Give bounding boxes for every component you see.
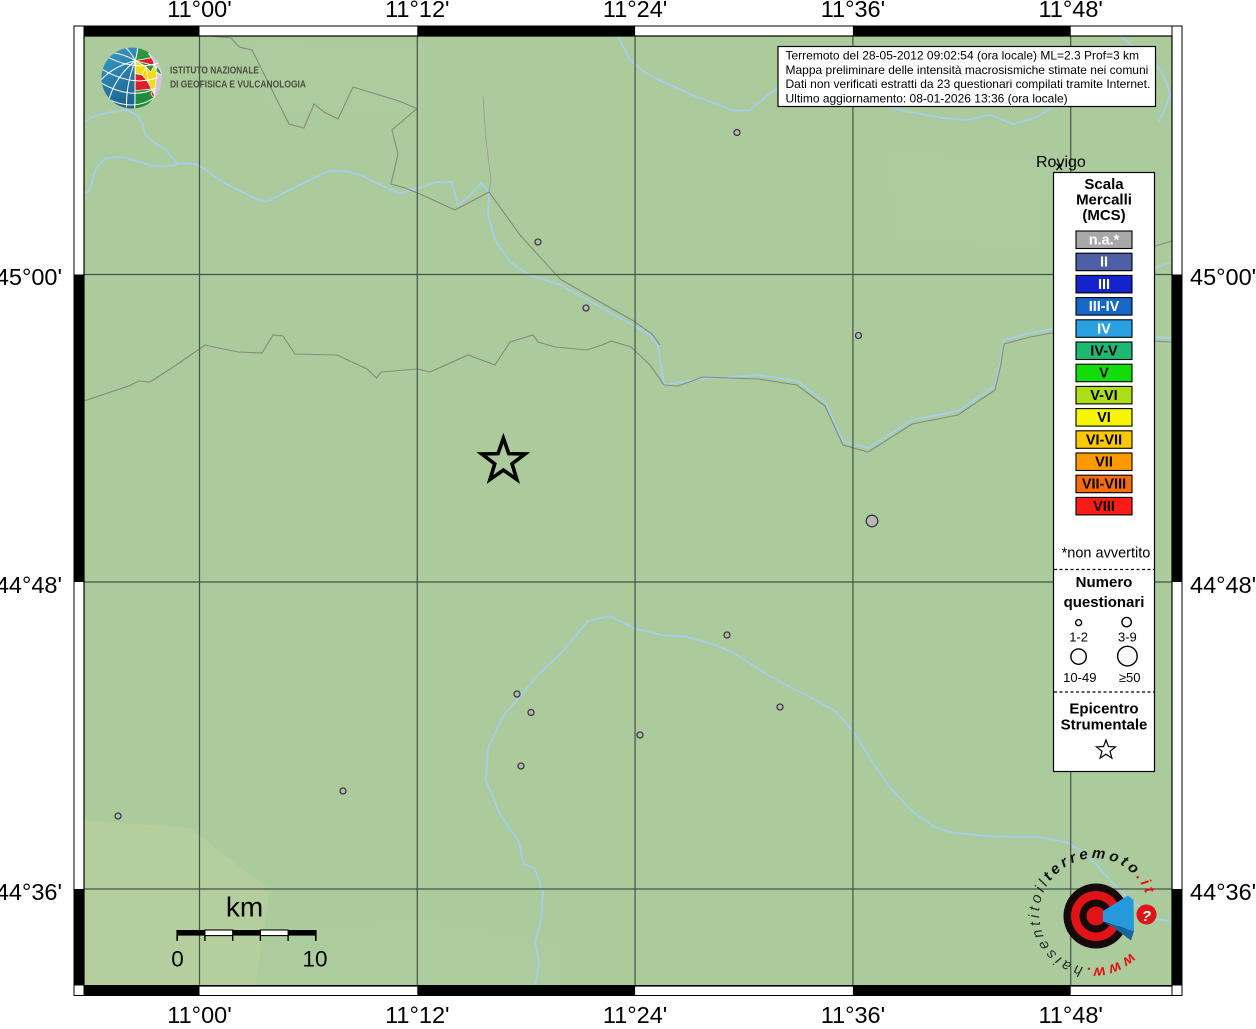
svg-text:44°48': 44°48' <box>0 572 62 598</box>
svg-text:questionari: questionari <box>1064 594 1145 611</box>
svg-text:44°36': 44°36' <box>0 879 62 905</box>
svg-text:*non avvertito: *non avvertito <box>1062 546 1151 562</box>
svg-text:V-VI: V-VI <box>1090 388 1117 404</box>
svg-text:45°00': 45°00' <box>1190 264 1256 290</box>
svg-text:(MCS): (MCS) <box>1082 207 1125 224</box>
svg-text:11°12': 11°12' <box>385 0 449 22</box>
svg-text:10-49: 10-49 <box>1063 670 1096 685</box>
svg-text:Epicentro: Epicentro <box>1069 701 1138 718</box>
svg-text:11°36': 11°36' <box>821 0 885 22</box>
svg-text:km: km <box>226 892 263 923</box>
svg-text:11°48': 11°48' <box>1038 1002 1102 1024</box>
svg-text:45°00': 45°00' <box>0 264 62 290</box>
svg-text:IV: IV <box>1097 321 1111 337</box>
svg-text:3-9: 3-9 <box>1118 629 1137 644</box>
svg-text:0: 0 <box>171 947 184 972</box>
svg-text:Numero: Numero <box>1076 574 1133 591</box>
svg-text:Strumentale: Strumentale <box>1061 717 1148 734</box>
svg-text:10: 10 <box>302 947 327 972</box>
svg-text:Mercalli: Mercalli <box>1076 192 1132 209</box>
svg-text:11°00': 11°00' <box>167 0 231 22</box>
svg-text:V: V <box>1099 366 1109 382</box>
svg-text:44°48': 44°48' <box>1190 572 1256 598</box>
svg-text:?: ? <box>1142 908 1151 925</box>
svg-text:Ultimo aggiornamento: 08-01-20: Ultimo aggiornamento: 08-01-2026 13:36 (… <box>786 91 1068 105</box>
svg-text:≥50: ≥50 <box>1119 670 1141 685</box>
svg-text:III-IV: III-IV <box>1089 299 1120 315</box>
svg-text:1-2: 1-2 <box>1069 629 1088 644</box>
svg-text:VII: VII <box>1095 455 1113 471</box>
svg-text:Dati non verificati estratti d: Dati non verificati estratti da 23 quest… <box>786 77 1151 91</box>
svg-text:11°24': 11°24' <box>603 0 667 22</box>
svg-text:11°24': 11°24' <box>603 1002 667 1024</box>
svg-text:11°48': 11°48' <box>1038 0 1102 22</box>
svg-text:DI GEOFISICA E VULCANOLOGIA: DI GEOFISICA E VULCANOLOGIA <box>170 80 307 91</box>
svg-text:VI-VII: VI-VII <box>1086 432 1122 448</box>
svg-text:11°36': 11°36' <box>821 1002 885 1024</box>
svg-text:n.a.*: n.a.* <box>1089 233 1120 249</box>
svg-text:VI: VI <box>1097 410 1111 426</box>
svg-text:IV-V: IV-V <box>1090 344 1118 360</box>
svg-text:Mappa preliminare delle intens: Mappa preliminare delle intensità macros… <box>786 63 1149 77</box>
svg-text:11°00': 11°00' <box>167 1002 231 1024</box>
svg-text:VII-VIII: VII-VIII <box>1082 477 1126 493</box>
svg-text:11°12': 11°12' <box>385 1002 449 1024</box>
svg-text:III: III <box>1098 277 1110 293</box>
svg-text:II: II <box>1100 255 1108 271</box>
svg-text:VIII: VIII <box>1093 499 1115 515</box>
svg-text:Rovigo: Rovigo <box>1036 154 1086 171</box>
svg-text:44°36': 44°36' <box>1190 879 1256 905</box>
svg-text:Terremoto del 28-05-2012 09:02: Terremoto del 28-05-2012 09:02:54 (ora l… <box>786 49 1140 63</box>
svg-text:ISTITUTO NAZIONALE: ISTITUTO NAZIONALE <box>170 66 259 77</box>
svg-text:Scala: Scala <box>1084 176 1124 193</box>
